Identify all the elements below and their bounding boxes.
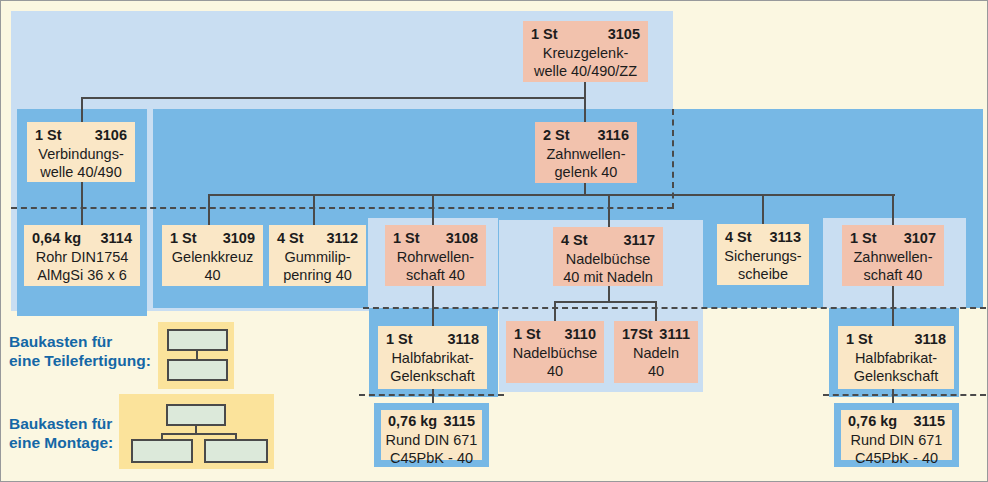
node-qty: 1 St xyxy=(846,330,873,349)
connector xyxy=(209,194,895,196)
bom-node-3117: 4 St3117 Nadelbüchse 40 mit Nadeln xyxy=(553,227,663,286)
bom-node-3109: 1 St3109 Gelenkkreuz 40 xyxy=(162,225,263,286)
bom-node-3107: 1 St3107 Zahnwellen- schaft 40 xyxy=(842,225,944,286)
legend-mini-box xyxy=(204,439,268,463)
node-title: Halbfabrikat- xyxy=(383,349,482,368)
node-qty: 1 St xyxy=(386,330,413,349)
node-code: 3114 xyxy=(101,229,132,248)
node-title: 40 xyxy=(167,266,258,285)
node-title: Sicherungs- xyxy=(722,247,804,266)
bom-node-3105: 1 St3105 Kreuzgelenk- welle 40/490/ZZ xyxy=(523,21,648,82)
node-title: Gelenkkreuz xyxy=(167,248,258,267)
legend-mini-box xyxy=(131,439,193,463)
bom-node-3113: 4 St3113 Sicherungs- scheibe xyxy=(717,224,809,285)
node-code: 3117 xyxy=(624,231,655,250)
legend-mini-box xyxy=(167,329,228,351)
node-qty: 4 St xyxy=(725,228,752,247)
bom-node-3115-right: 0,76 kg3115 Rund DIN 671 C45PbK - 40 xyxy=(834,403,959,467)
node-title: 40 xyxy=(619,362,693,381)
node-title: 40 mit Nadeln xyxy=(558,268,658,287)
connector xyxy=(554,301,556,323)
bom-node-3108: 1 St3108 Rohrwellen- schaft 40 xyxy=(385,225,486,286)
bom-node-3112: 4 St3112 Gummilip- penring 40 xyxy=(269,225,366,286)
node-title: Zahnwellen- xyxy=(847,248,939,267)
legend-mini-box xyxy=(167,359,228,381)
node-code: 3115 xyxy=(914,412,945,431)
node-title: AlMgSi 36 x 6 xyxy=(29,266,135,285)
node-qty: 1 St xyxy=(170,229,197,248)
node-qty: 4 St xyxy=(561,231,588,250)
node-qty: 1 St xyxy=(531,25,558,44)
node-code: 3108 xyxy=(446,229,478,248)
node-title: penring 40 xyxy=(274,266,361,285)
node-qty: 2 St xyxy=(543,126,570,145)
node-qty: 1 St xyxy=(393,229,420,248)
node-code: 3110 xyxy=(565,325,596,344)
connector xyxy=(584,82,586,123)
legend-connector xyxy=(196,351,198,359)
node-qty: 0,76 kg xyxy=(848,412,897,431)
node-title: Nadelbüchse xyxy=(511,344,599,363)
connector xyxy=(432,194,434,229)
node-code: 3116 xyxy=(598,126,629,145)
node-title: Verbindungs- xyxy=(32,145,130,164)
bom-node-3106: 1 St3106 Verbindungs- welle 40/490 xyxy=(27,122,135,182)
node-title: 40 xyxy=(511,362,599,381)
legend-montage-label: Baukasten für eine Montage: xyxy=(9,414,113,452)
node-title: Rohr DIN1754 xyxy=(29,248,135,267)
node-qty: 4 St xyxy=(277,229,304,248)
node-code: 3109 xyxy=(223,229,255,248)
node-code: 3115 xyxy=(444,412,475,431)
bom-node-3111: 17St3111 Nadeln 40 xyxy=(614,321,698,383)
level-boundary-dashed-1 xyxy=(11,207,673,209)
legend-connector xyxy=(161,433,237,435)
bom-node-3118-left: 1 St3118 Halbfabrikat- Gelenkschaft xyxy=(378,326,487,389)
node-title: Nadelbüchse xyxy=(558,250,658,269)
legend-mini-box xyxy=(166,404,226,426)
connector xyxy=(208,194,210,229)
node-qty: 1 St xyxy=(850,229,877,248)
node-qty: 0,64 kg xyxy=(32,229,81,248)
node-title: schaft 40 xyxy=(390,266,481,285)
node-title: Gelenkschaft xyxy=(383,367,482,386)
bom-node-3110: 1 St3110 Nadelbüchse 40 xyxy=(506,321,604,383)
node-title: welle 40/490/ZZ xyxy=(528,62,643,81)
node-code: 3106 xyxy=(95,126,127,145)
node-title: Kreuzgelenk- xyxy=(528,44,643,63)
node-title: gelenk 40 xyxy=(540,163,632,182)
node-code: 3118 xyxy=(915,330,946,349)
node-title: scheibe xyxy=(722,265,804,284)
bom-node-3118-right: 1 St3118 Halbfabrikat- Gelenkschaft xyxy=(838,326,954,389)
bom-node-3116: 2 St3116 Zahnwellen- gelenk 40 xyxy=(535,122,637,183)
legend-teilefertigung-label: Baukasten für eine Teilefertigung: xyxy=(9,332,151,370)
node-title: Rund DIN 671 xyxy=(385,431,478,450)
node-title: Rund DIN 671 xyxy=(845,431,948,450)
node-title: welle 40/490 xyxy=(32,163,130,182)
connector xyxy=(608,194,610,231)
node-qty: 0,76 kg xyxy=(388,412,437,431)
node-qty: 1 St xyxy=(35,126,62,145)
connector xyxy=(555,301,657,303)
node-title: Zahnwellen- xyxy=(540,145,632,164)
node-title: Gelenkschaft xyxy=(843,367,949,386)
node-qty: 1 St xyxy=(514,325,541,344)
node-title: Rohrwellen- xyxy=(390,248,481,267)
node-title: C45PbK - 40 xyxy=(385,449,478,468)
node-code: 3107 xyxy=(904,229,936,248)
bom-diagram: 1 St3105 Kreuzgelenk- welle 40/490/ZZ 1 … xyxy=(0,0,988,482)
bom-node-3115-left: 0,76 kg3115 Rund DIN 671 C45PbK - 40 xyxy=(374,403,489,467)
bom-node-3114: 0,64 kg3114 Rohr DIN1754 AlMgSi 36 x 6 xyxy=(24,225,140,286)
node-code: 3112 xyxy=(327,229,358,248)
node-code: 3105 xyxy=(608,25,640,44)
connector xyxy=(655,301,657,323)
node-title: Nadeln xyxy=(619,344,693,363)
node-title: Halbfabrikat- xyxy=(843,349,949,368)
connector xyxy=(313,194,315,229)
node-title: schaft 40 xyxy=(847,266,939,285)
node-title: C45PbK - 40 xyxy=(845,449,948,468)
node-qty: 17St xyxy=(622,325,653,344)
node-code: 3113 xyxy=(770,228,801,247)
node-code: 3118 xyxy=(448,330,479,349)
level-boundary-dashed-3-right xyxy=(823,394,986,396)
connector xyxy=(892,194,894,229)
node-code: 3111 xyxy=(659,325,690,344)
connector xyxy=(82,97,586,99)
node-title: Gummilip- xyxy=(274,248,361,267)
